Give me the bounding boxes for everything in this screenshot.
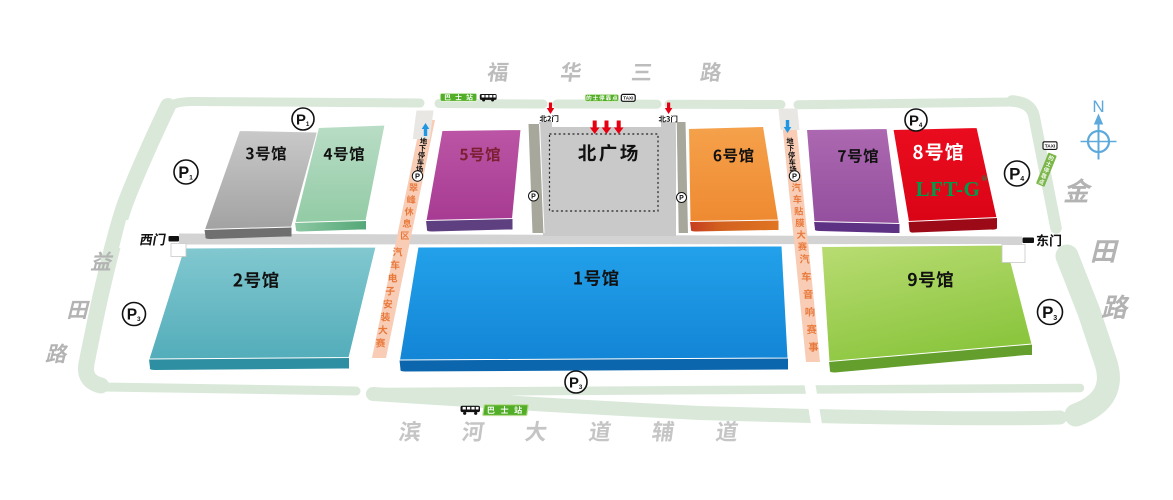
svg-text:4: 4 <box>919 122 923 129</box>
svg-text:P: P <box>1042 303 1053 322</box>
svg-text:N: N <box>1092 97 1104 116</box>
svg-text:P: P <box>569 375 579 391</box>
svg-text:P: P <box>531 194 536 201</box>
svg-text:P: P <box>792 172 797 181</box>
svg-text:P: P <box>679 195 684 202</box>
svg-text:TAXI: TAXI <box>1045 144 1056 150</box>
svg-text:®: ® <box>982 174 988 183</box>
svg-text:P: P <box>909 113 919 129</box>
svg-text:3: 3 <box>137 316 141 323</box>
svg-text:3: 3 <box>579 384 583 391</box>
svg-text:1: 1 <box>189 174 193 181</box>
svg-text:P: P <box>415 172 420 181</box>
svg-text:1: 1 <box>306 121 310 128</box>
svg-text:P: P <box>296 112 306 128</box>
svg-text:3: 3 <box>1053 314 1057 322</box>
svg-text:P: P <box>1009 165 1020 184</box>
svg-text:P: P <box>178 164 189 182</box>
svg-text:LFT-G: LFT-G <box>916 177 981 201</box>
svg-text:TAXI: TAXI <box>623 96 633 101</box>
svg-text:P: P <box>127 307 137 324</box>
svg-text:4: 4 <box>1020 175 1024 183</box>
